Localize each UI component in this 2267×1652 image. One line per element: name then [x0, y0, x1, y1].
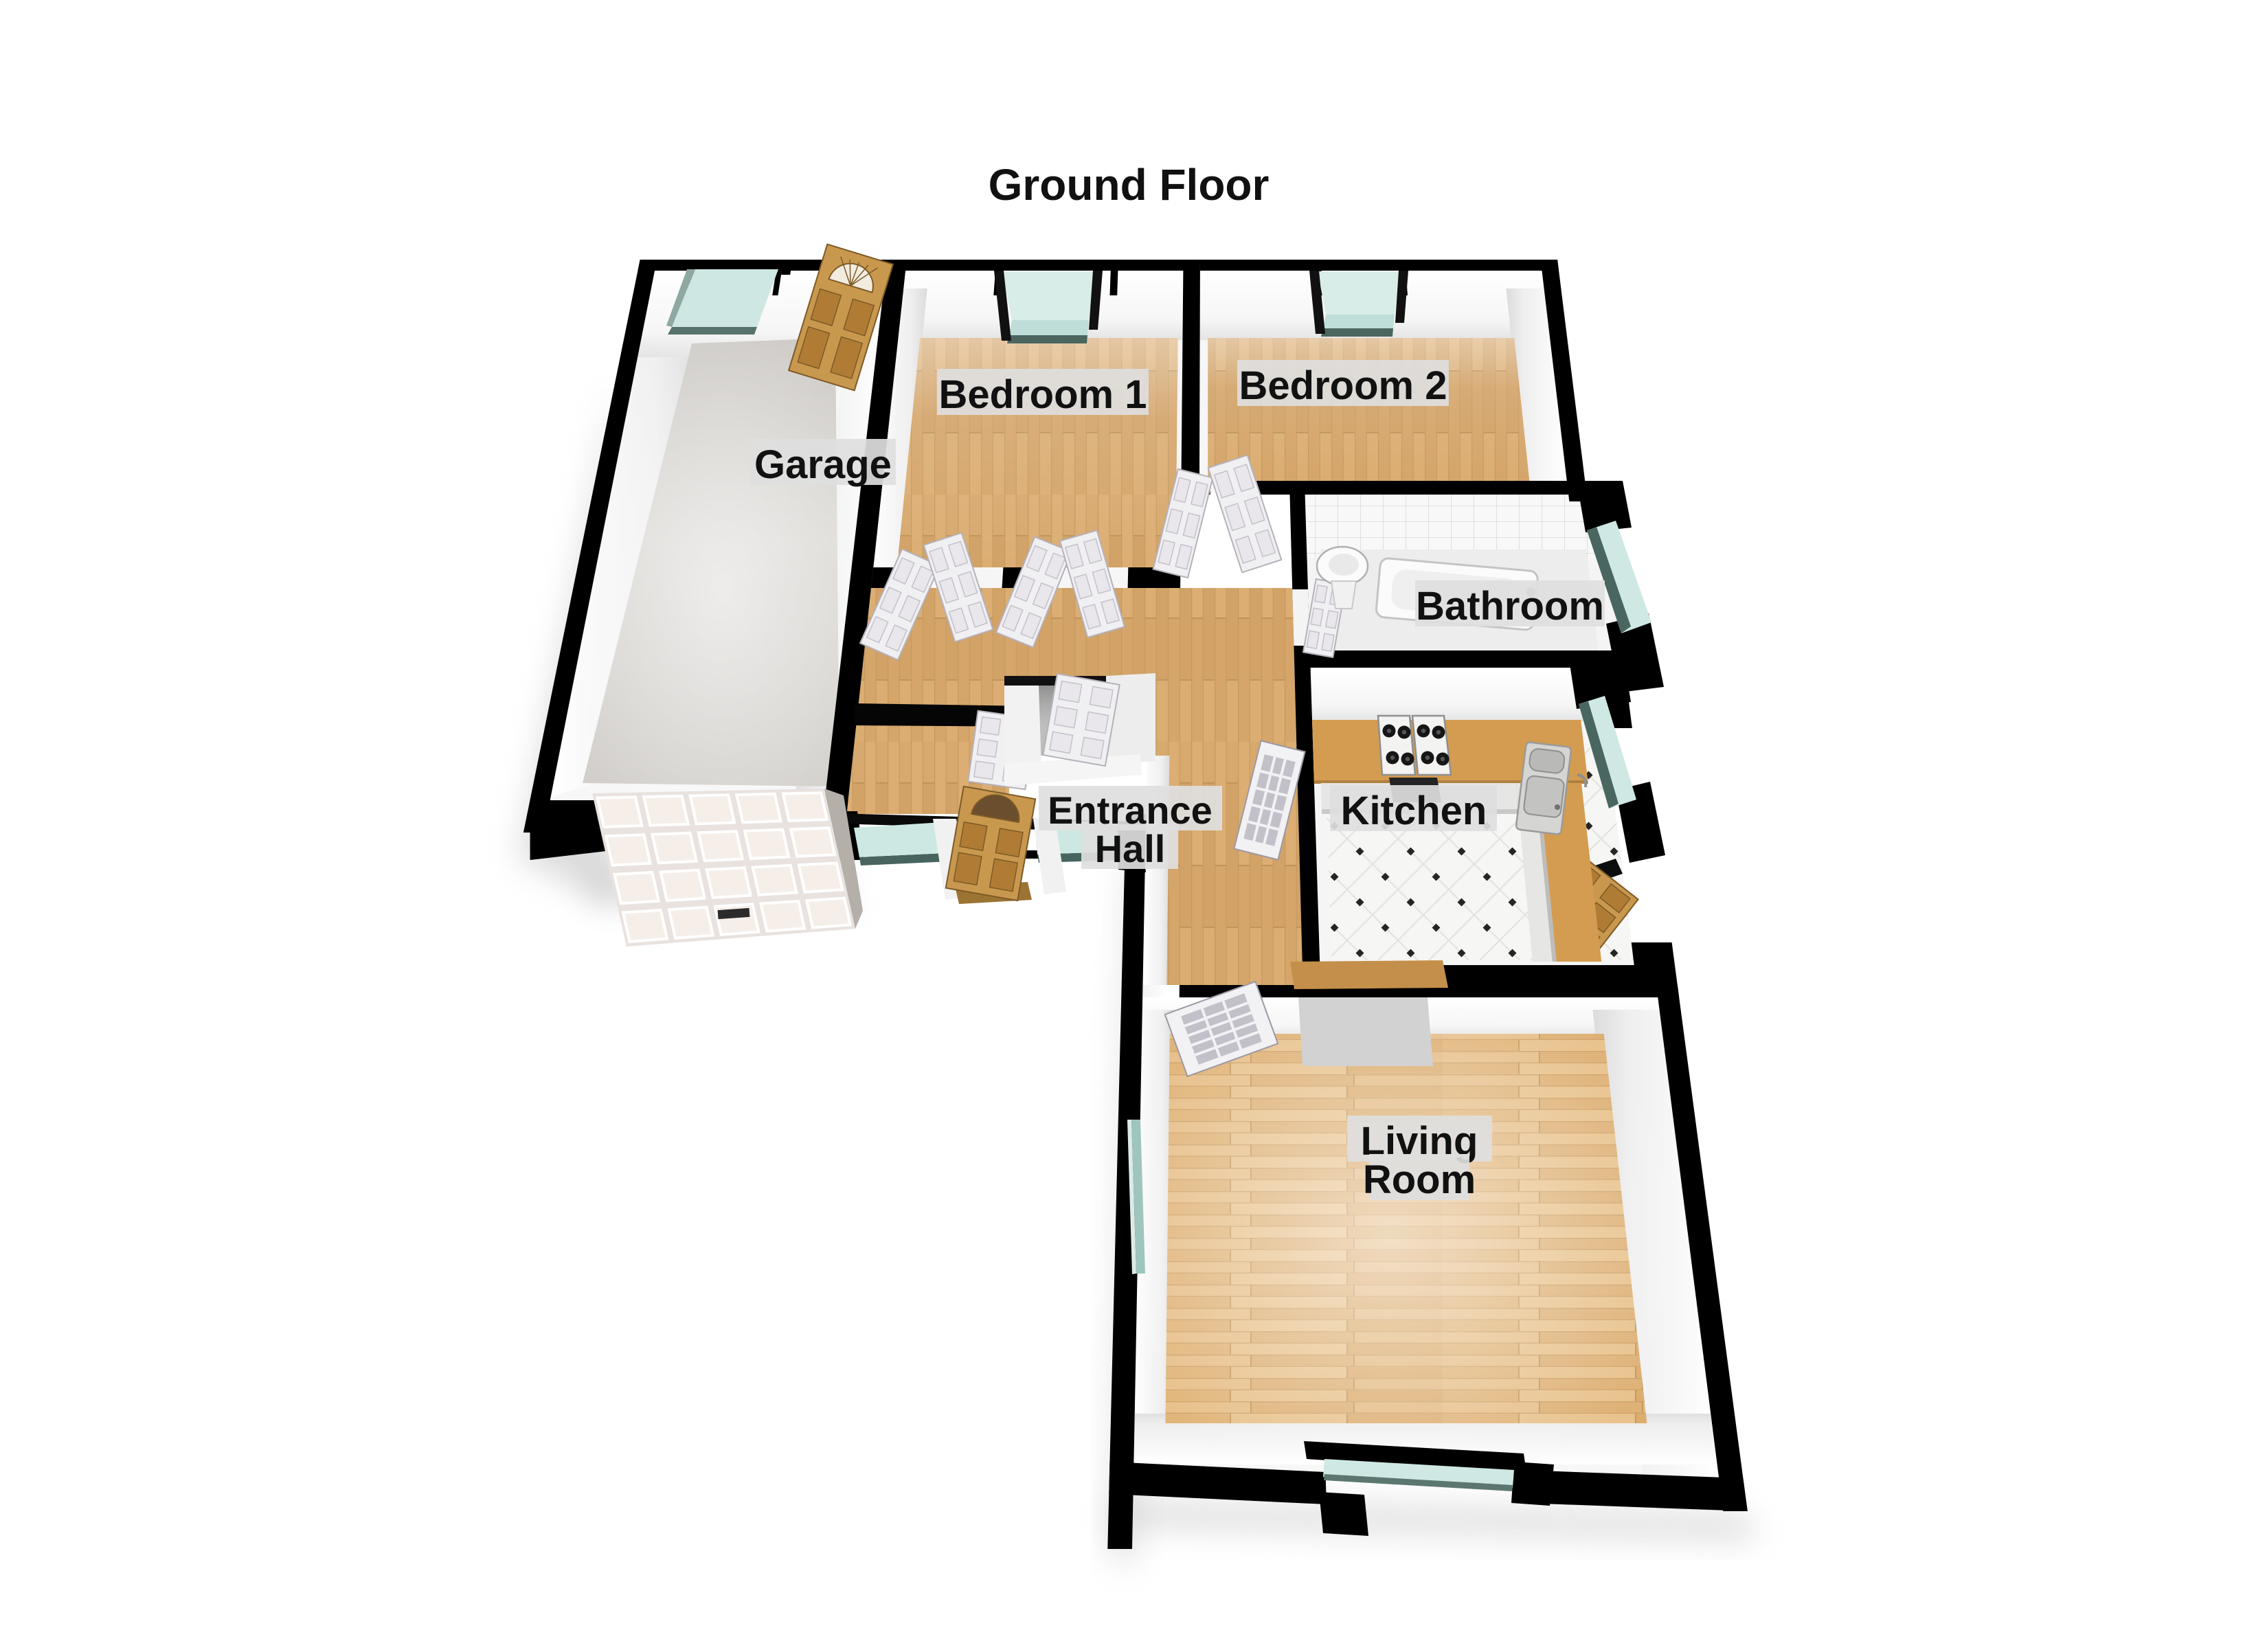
- svg-text:Bedroom 2: Bedroom 2: [1239, 363, 1447, 408]
- svg-text:Room: Room: [1363, 1157, 1476, 1202]
- svg-text:Bedroom 1: Bedroom 1: [939, 372, 1147, 417]
- svg-text:Ground Floor: Ground Floor: [989, 160, 1270, 210]
- svg-text:Kitchen: Kitchen: [1341, 789, 1487, 833]
- svg-text:Garage: Garage: [754, 442, 892, 487]
- svg-text:Hall: Hall: [1095, 827, 1166, 870]
- svg-text:Bathroom: Bathroom: [1416, 584, 1604, 629]
